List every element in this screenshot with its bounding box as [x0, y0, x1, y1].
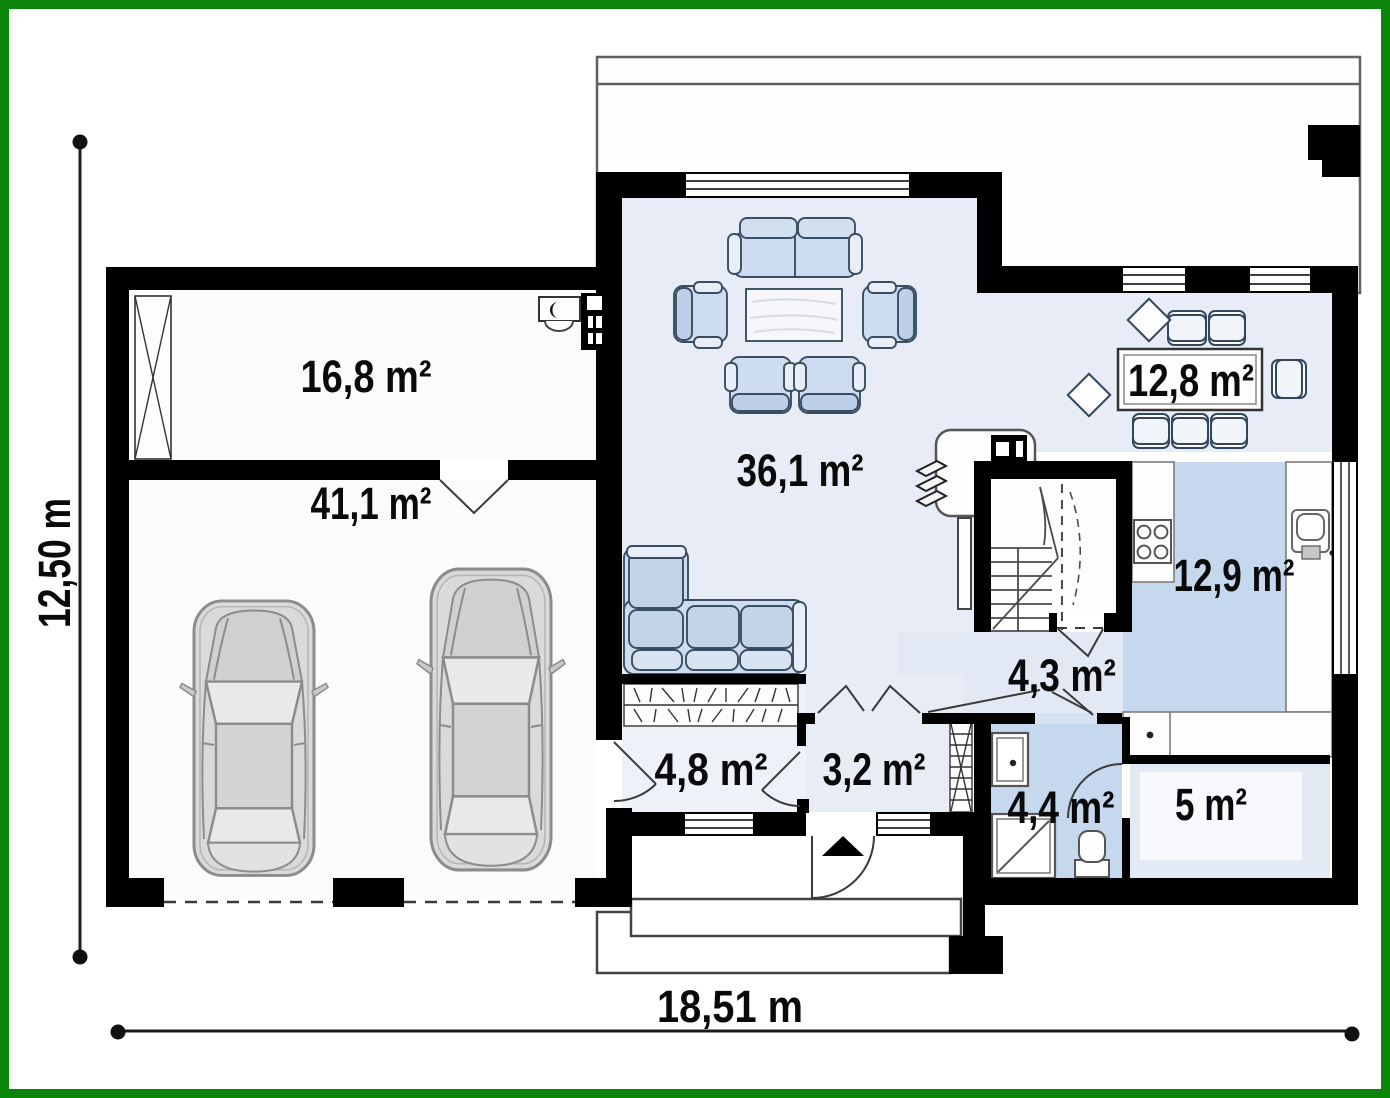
svg-text:4,3 m²: 4,3 m²	[1008, 650, 1116, 701]
svg-text:4,4 m²: 4,4 m²	[1008, 782, 1115, 833]
svg-text:36,1 m²: 36,1 m²	[737, 445, 864, 496]
svg-text:4,8 m²: 4,8 m²	[655, 744, 768, 795]
svg-text:5 m²: 5 m²	[1175, 779, 1247, 830]
svg-text:12,9 m²: 12,9 m²	[1174, 550, 1295, 601]
svg-text:41,1 m²: 41,1 m²	[311, 478, 432, 529]
svg-text:3,2 m²: 3,2 m²	[823, 744, 926, 795]
svg-text:18,51 m: 18,51 m	[657, 981, 803, 1032]
svg-text:12,50 m: 12,50 m	[29, 498, 80, 628]
svg-text:12,8 m²: 12,8 m²	[1128, 355, 1254, 406]
svg-text:16,8 m²: 16,8 m²	[301, 351, 432, 402]
